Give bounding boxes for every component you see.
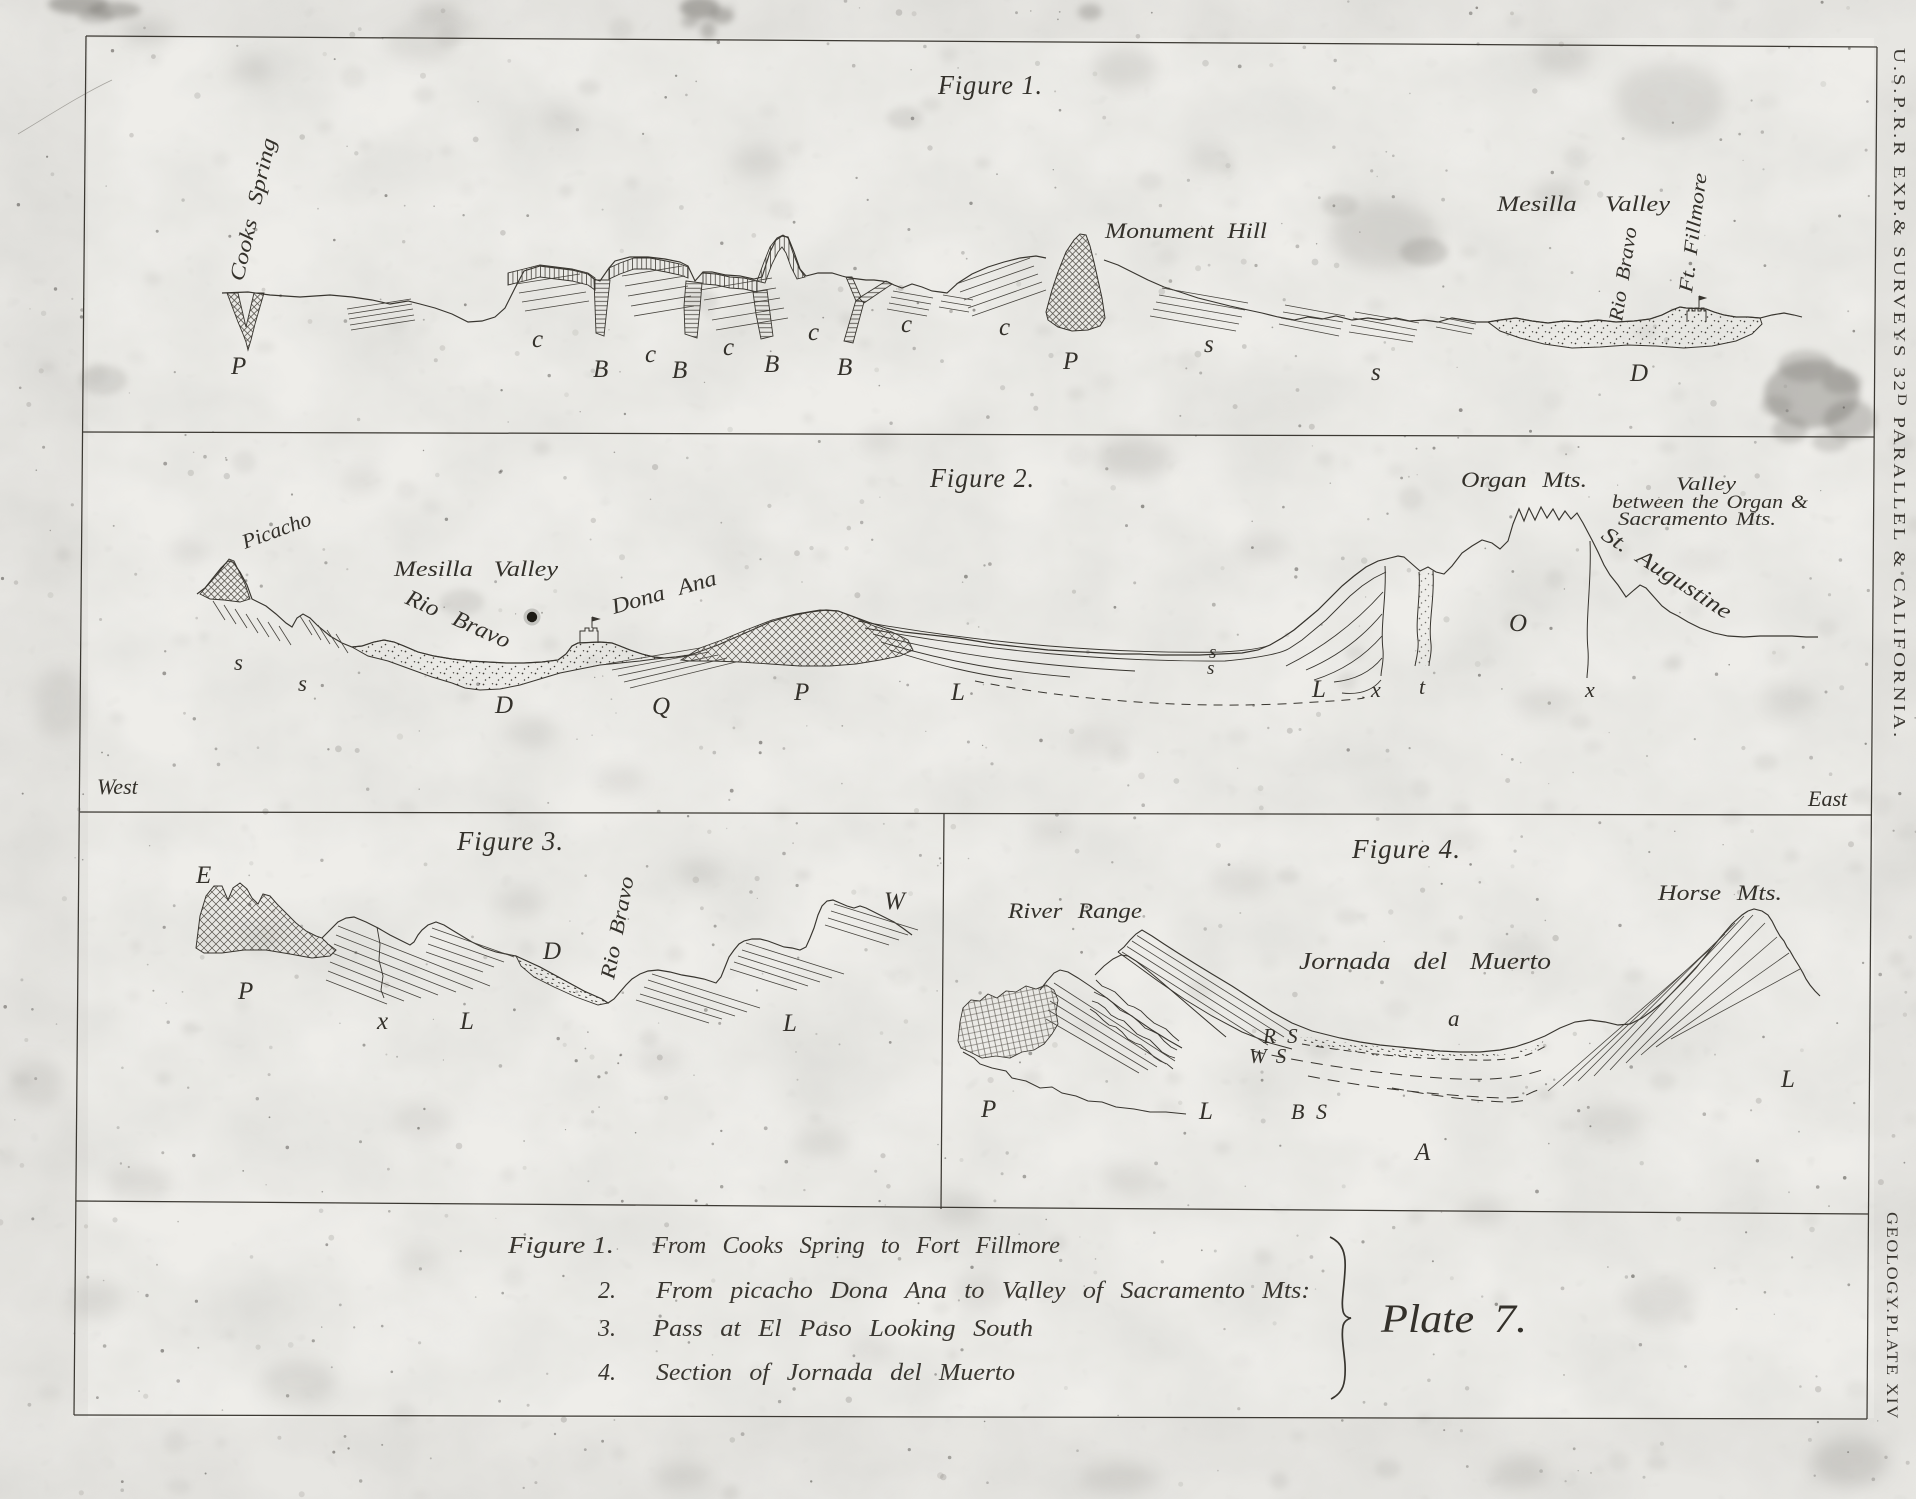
svg-text:Sacramento Mts.: Sacramento Mts. <box>1618 509 1776 530</box>
svg-text:L: L <box>1311 676 1326 703</box>
svg-text:a: a <box>1448 1006 1460 1031</box>
svg-text:B: B <box>672 357 687 384</box>
svg-text:B: B <box>837 354 852 381</box>
svg-text:Q: Q <box>652 693 670 720</box>
svg-text:c: c <box>901 311 912 338</box>
svg-text:Plate 7.: Plate 7. <box>1380 1296 1527 1341</box>
svg-text:3.: 3. <box>597 1316 616 1342</box>
svg-text:c: c <box>723 334 734 361</box>
svg-text:Figure 3.: Figure 3. <box>456 826 564 856</box>
svg-text:t: t <box>1419 674 1426 699</box>
svg-text:L: L <box>782 1010 797 1037</box>
svg-text:Organ Mts.: Organ Mts. <box>1461 467 1587 492</box>
svg-text:Figure 1.: Figure 1. <box>507 1233 614 1259</box>
svg-text:River Range: River Range <box>1007 898 1142 923</box>
svg-text:Section of Jornada del Muerto: Section of Jornada del Muerto <box>656 1360 1015 1386</box>
svg-text:Mesilla Valley: Mesilla Valley <box>393 556 558 581</box>
svg-text:4.: 4. <box>598 1360 616 1386</box>
svg-text:P: P <box>1062 348 1078 375</box>
svg-text:Pass at El Paso Looking South: Pass at El Paso Looking South <box>652 1316 1033 1342</box>
svg-text:s: s <box>1204 331 1214 358</box>
svg-text:P: P <box>980 1096 996 1123</box>
svg-text:D: D <box>542 938 561 965</box>
svg-text:x: x <box>1584 677 1595 702</box>
svg-text:c: c <box>808 319 819 346</box>
svg-text:O: O <box>1509 610 1527 637</box>
svg-text:c: c <box>999 314 1010 341</box>
svg-text:W: W <box>884 888 907 915</box>
svg-text:s: s <box>234 650 243 675</box>
svg-text:L: L <box>950 679 965 706</box>
svg-text:L: L <box>1198 1098 1213 1125</box>
svg-text:c: c <box>645 341 656 368</box>
svg-text:GEOLOGY.PLATE XIV: GEOLOGY.PLATE XIV <box>1883 1212 1900 1420</box>
svg-text:P: P <box>237 978 253 1005</box>
svg-text:x: x <box>376 1008 388 1035</box>
svg-text:Monument Hill: Monument Hill <box>1104 218 1267 243</box>
svg-text:From picacho Dona Ana to Valle: From picacho Dona Ana to Valley of Sacra… <box>655 1278 1310 1304</box>
svg-text:2.: 2. <box>598 1278 616 1304</box>
svg-text:L: L <box>1780 1066 1795 1093</box>
svg-text:x: x <box>1370 677 1381 702</box>
svg-text:West: West <box>97 774 139 799</box>
svg-text:L: L <box>459 1008 474 1035</box>
svg-text:D: D <box>494 692 513 719</box>
svg-text:P: P <box>230 353 246 380</box>
svg-text:s: s <box>298 671 307 696</box>
svg-text:s: s <box>1207 658 1214 679</box>
svg-text:s: s <box>1371 359 1381 386</box>
svg-text:Mesilla Valley: Mesilla Valley <box>1496 191 1670 216</box>
svg-text:c: c <box>532 326 543 353</box>
svg-text:Figure 2.: Figure 2. <box>929 463 1035 493</box>
svg-text:From Cooks Spring to Fort Fill: From Cooks Spring to Fort Fillmore <box>652 1233 1060 1259</box>
svg-text:B S: B S <box>1291 1099 1330 1124</box>
svg-text:Horse Mts.: Horse Mts. <box>1657 880 1782 905</box>
svg-text:East: East <box>1807 786 1848 811</box>
svg-text:Figure 1.: Figure 1. <box>937 70 1043 100</box>
svg-text:W S: W S <box>1249 1044 1288 1068</box>
svg-text:P: P <box>793 679 809 706</box>
svg-text:B: B <box>593 356 608 383</box>
svg-text:Jornada del Muerto: Jornada del Muerto <box>1299 949 1551 975</box>
svg-text:E: E <box>195 862 211 889</box>
svg-text:D: D <box>1629 360 1648 387</box>
svg-text:A: A <box>1413 1139 1431 1166</box>
svg-text:B: B <box>764 351 779 378</box>
svg-text:Figure 4.: Figure 4. <box>1351 834 1461 864</box>
